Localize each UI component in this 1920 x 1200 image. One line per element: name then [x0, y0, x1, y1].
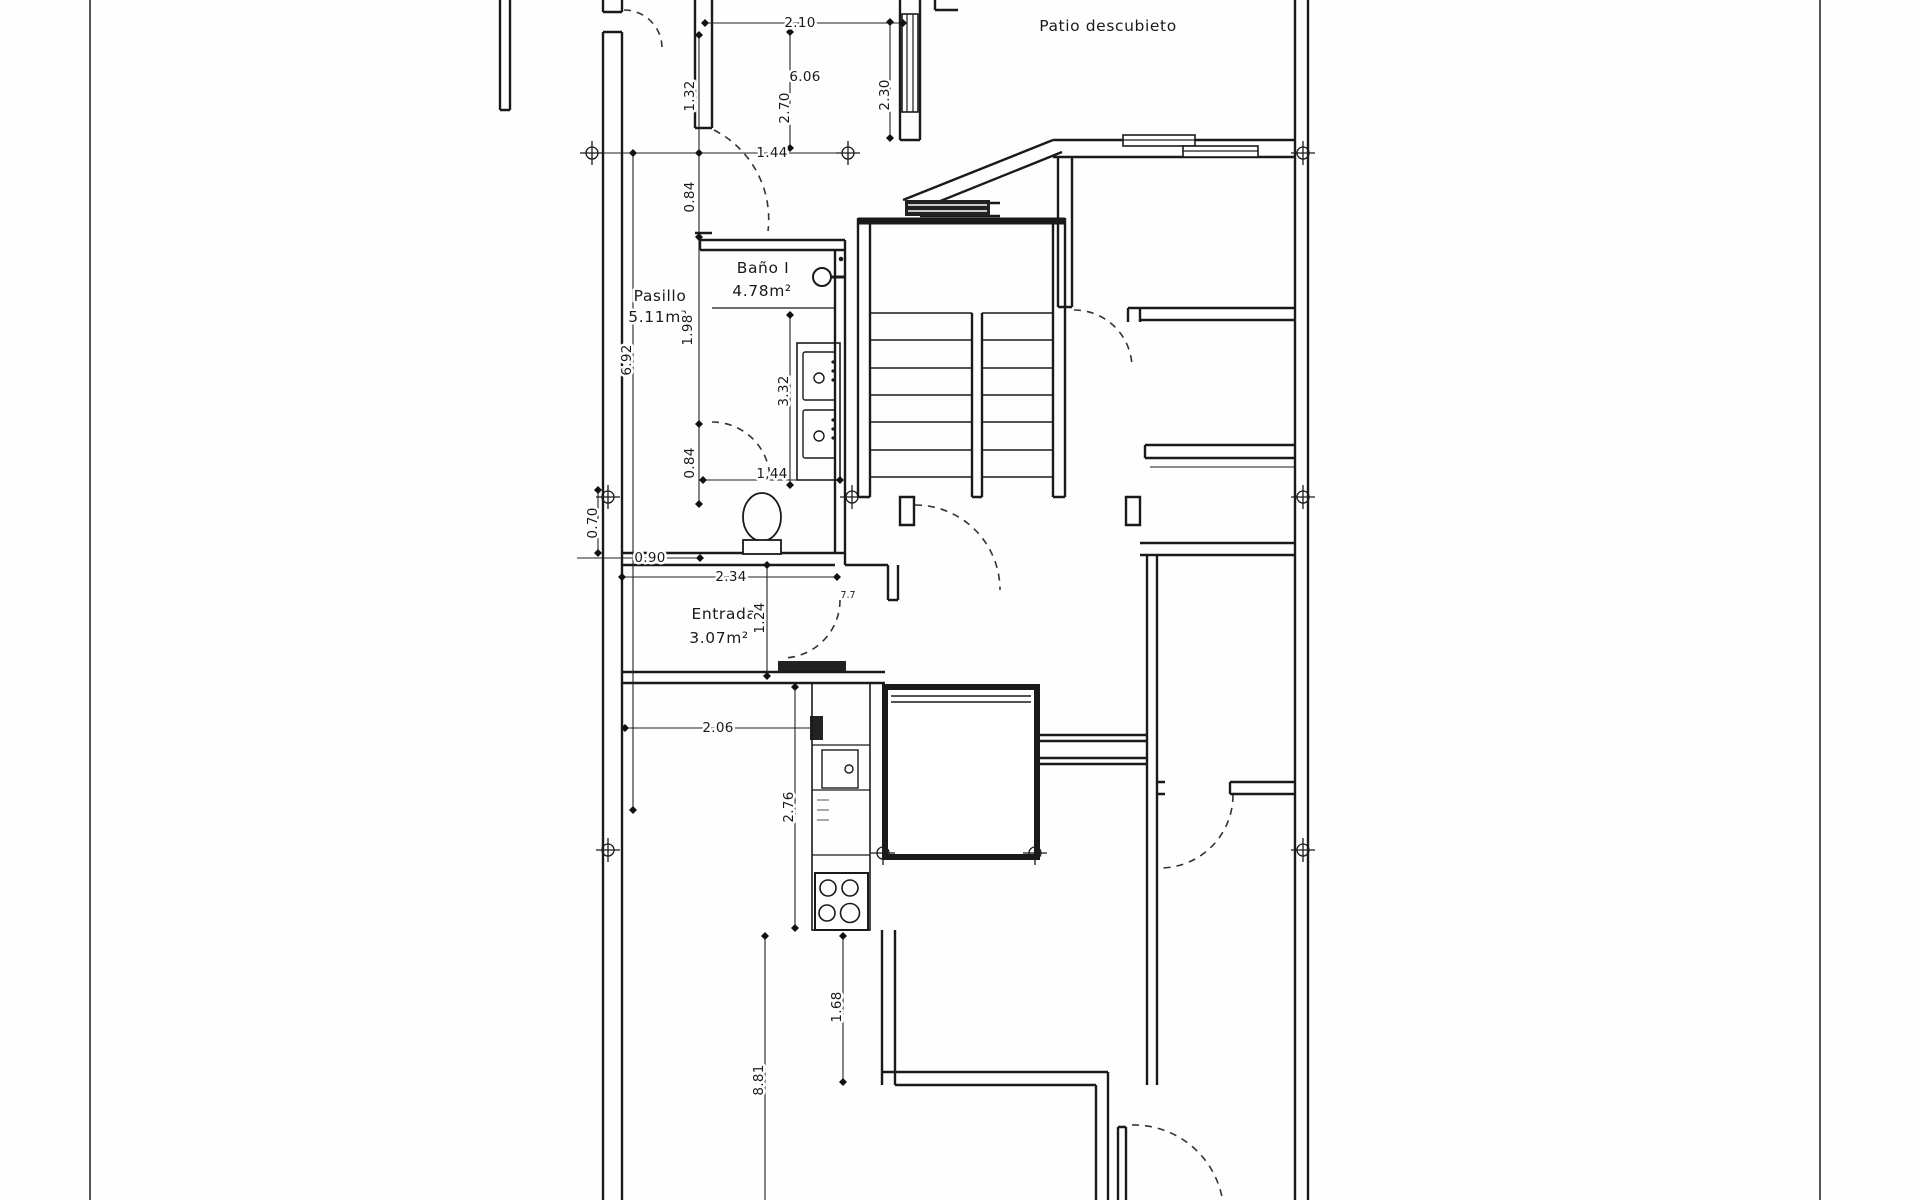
room-label-entrada: Entrada	[691, 605, 756, 623]
door-entrada	[782, 600, 840, 658]
dim-6-06: 6.06	[789, 69, 820, 85]
dim-0-90: 0.90	[634, 550, 665, 566]
room-label-pasillo: Pasillo	[634, 287, 687, 305]
door-hall	[915, 505, 1000, 590]
floor-plan-drawing: Patio descubieto Baño I 4.78m² Pasillo 5…	[0, 0, 1920, 1200]
thresholds	[778, 200, 990, 740]
room-area-entrada: 3.07m²	[689, 629, 748, 647]
dim-1-68: 1.68	[829, 991, 845, 1022]
dim-3-32: 3.32	[776, 375, 792, 406]
sink-2	[803, 410, 835, 458]
dim-2-10: 2.10	[784, 15, 815, 31]
dim-2-30: 2.30	[877, 79, 893, 110]
dim-0-70: 0.70	[585, 507, 601, 538]
windows	[902, 14, 1258, 216]
dim-1-24: 1.24	[752, 602, 768, 633]
room-label-patio: Patio descubieto	[1039, 17, 1177, 35]
room-area-bano: 4.78m²	[732, 282, 791, 300]
toilet-icon	[743, 493, 781, 541]
dim-2-76: 2.76	[781, 791, 797, 822]
dim-2-70: 2.70	[777, 92, 793, 123]
sink-1	[803, 352, 835, 400]
drawing-sheet: Patio descubieto Baño I 4.78m² Pasillo 5…	[0, 0, 1920, 1200]
dim-2-06: 2.06	[702, 720, 733, 736]
shower-head-icon	[813, 268, 831, 286]
door-top-left	[624, 10, 662, 47]
dim-8-81: 8.81	[751, 1064, 767, 1095]
dim-1-44-bottom: 1,44	[756, 466, 787, 482]
stair-steps	[870, 313, 1053, 477]
door-right-room	[1160, 795, 1233, 868]
dim-1-32: 1.32	[682, 80, 698, 111]
door-upper-right-room	[1074, 310, 1132, 368]
dim-1-98: 1.98	[680, 314, 696, 345]
door-arcs	[624, 10, 1233, 1197]
room-area-pasillo: 5.11m²	[628, 308, 687, 326]
dim-6-92: 6.92	[619, 344, 635, 375]
dim-0-84-upper: 0.84	[682, 181, 698, 212]
walls	[500, 0, 1308, 1200]
door-bottom-room	[1132, 1125, 1222, 1197]
dim-2-34: 2.34	[715, 569, 746, 585]
room-label-bano: Baño I	[737, 259, 790, 277]
dim-7-7: 7.7	[840, 590, 855, 601]
dim-0-84-lower: 0.84	[682, 447, 698, 478]
patio-lightwell	[885, 687, 1037, 857]
dim-1-44-top: 1.44	[756, 145, 787, 161]
